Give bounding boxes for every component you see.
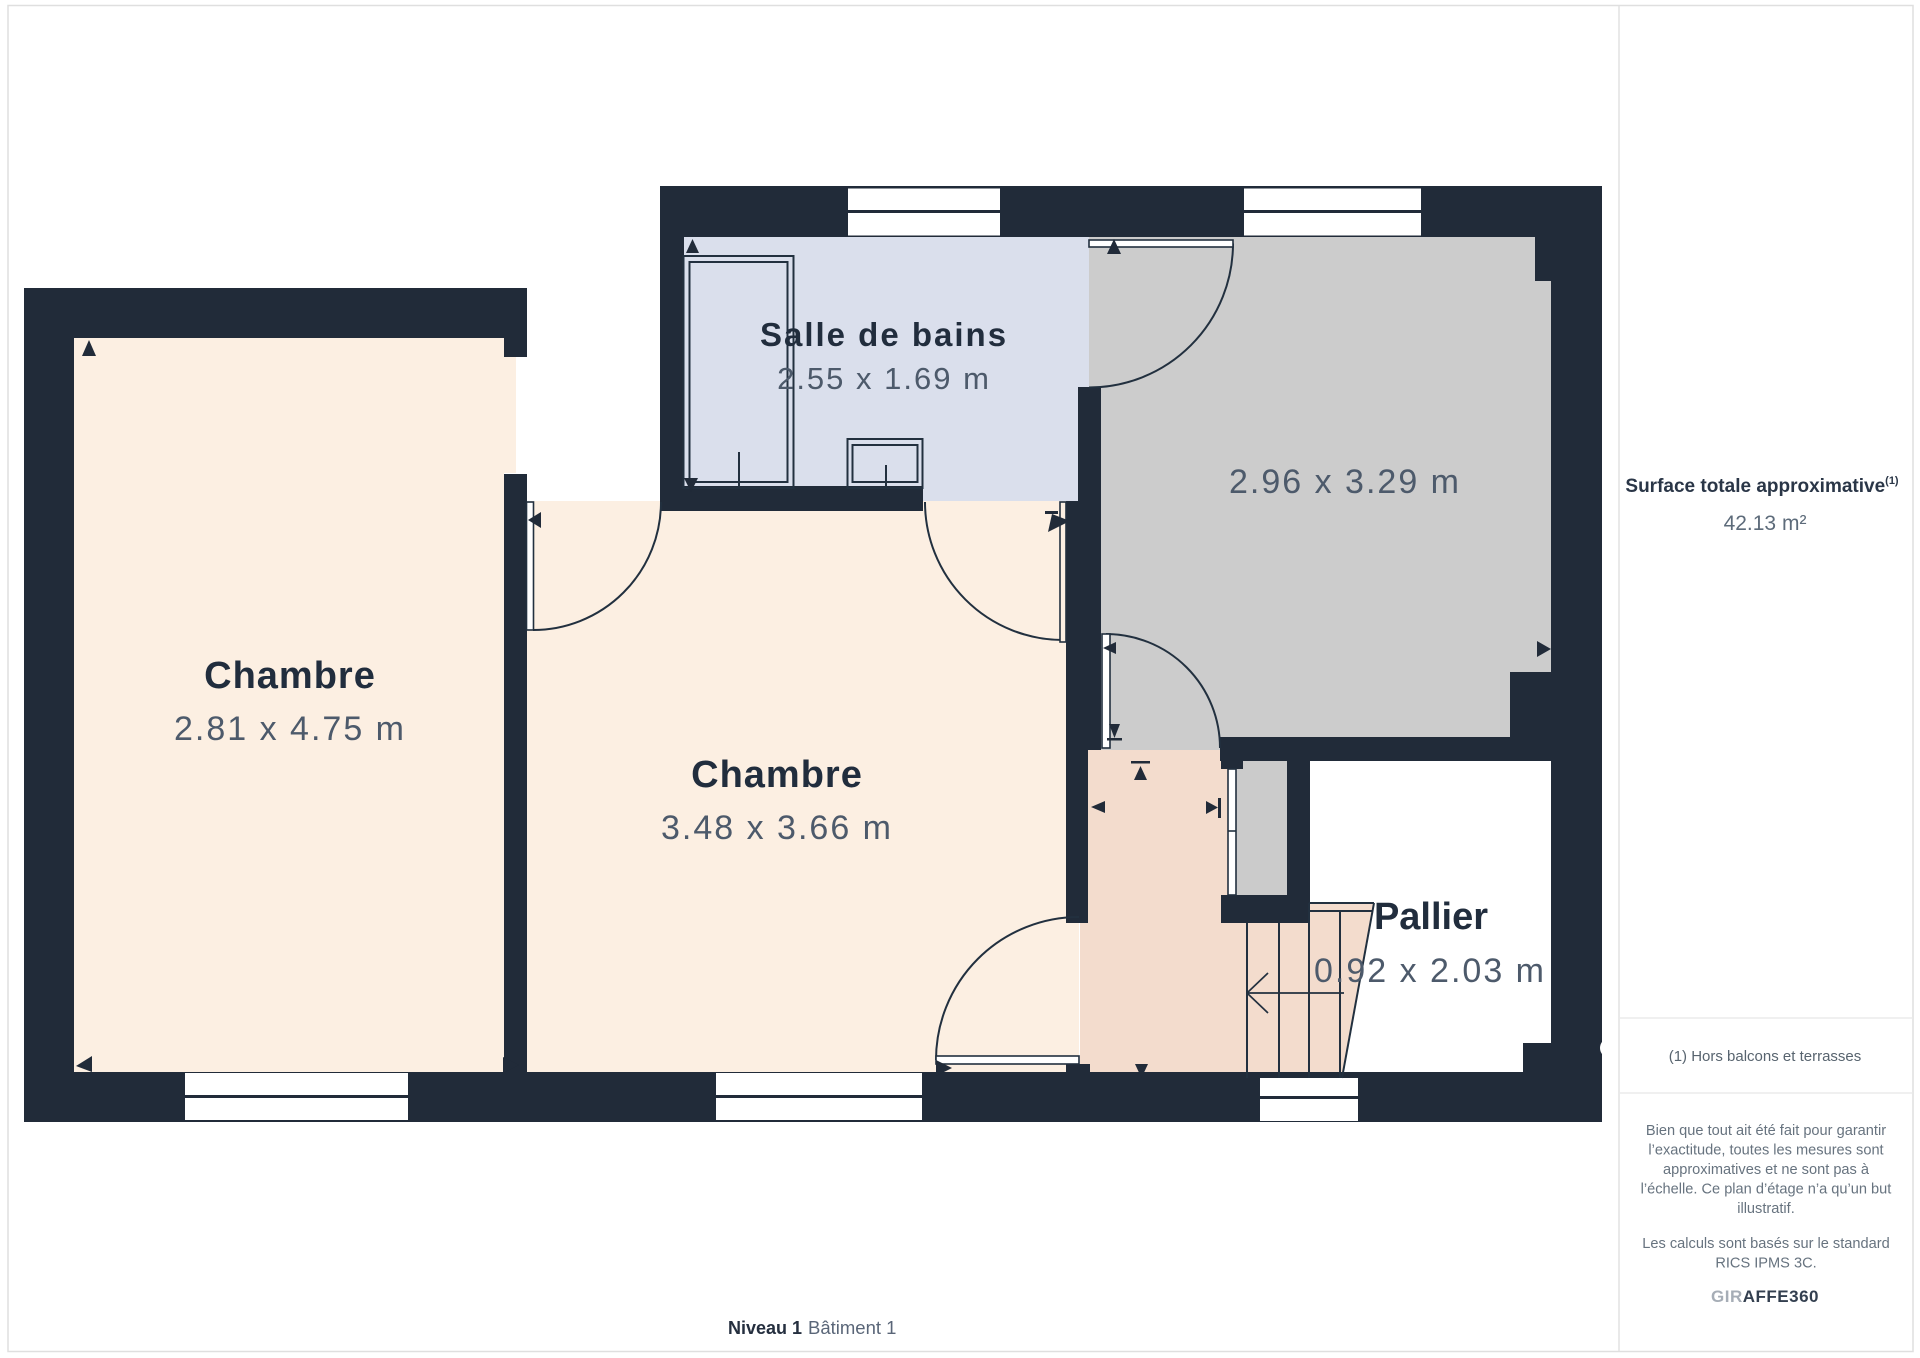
svg-text:Les calculs sont basés sur le: Les calculs sont basés sur le standard [1642, 1236, 1889, 1252]
svg-text:3.48 x 3.66 m: 3.48 x 3.66 m [661, 809, 893, 847]
svg-text:GIRAFFE360: GIRAFFE360 [1711, 1287, 1819, 1306]
svg-text:RICS IPMS 3C.: RICS IPMS 3C. [1715, 1256, 1816, 1272]
svg-text:approximatives et ne sont pas: approximatives et ne sont pas à [1663, 1162, 1870, 1178]
svg-text:Bien que tout ait été fait pou: Bien que tout ait été fait pour garantir [1646, 1123, 1886, 1139]
svg-text:(1) Hors balcons et terrasses: (1) Hors balcons et terrasses [1669, 1048, 1862, 1065]
svg-text:Chambre: Chambre [204, 655, 376, 697]
svg-text:Chambre: Chambre [691, 754, 863, 796]
svg-text:Salle de bains: Salle de bains [760, 316, 1008, 353]
svg-text:Pallier: Pallier [1374, 896, 1488, 938]
svg-text:0.92 x 2.03 m: 0.92 x 2.03 m [1314, 952, 1546, 990]
svg-text:42.13 m²: 42.13 m² [1724, 512, 1807, 535]
svg-text:Surface totale approximative(1: Surface totale approximative(1) [1625, 475, 1899, 497]
svg-text:Bâtiment 1: Bâtiment 1 [808, 1317, 896, 1338]
svg-text:2.96 x 3.29 m: 2.96 x 3.29 m [1229, 463, 1461, 501]
svg-text:illustratif.: illustratif. [1737, 1201, 1795, 1217]
svg-text:2.81 x 4.75 m: 2.81 x 4.75 m [174, 710, 406, 748]
svg-text:Niveau 1: Niveau 1 [728, 1318, 802, 1338]
svg-text:l’exactitude, toutes les mesur: l’exactitude, toutes les mesures sont [1648, 1143, 1883, 1159]
svg-text:2.55 x 1.69 m: 2.55 x 1.69 m [777, 361, 991, 396]
svg-text:l’échelle. Ce plan d’étage n’a: l’échelle. Ce plan d’étage n’a qu’un but [1641, 1182, 1892, 1198]
